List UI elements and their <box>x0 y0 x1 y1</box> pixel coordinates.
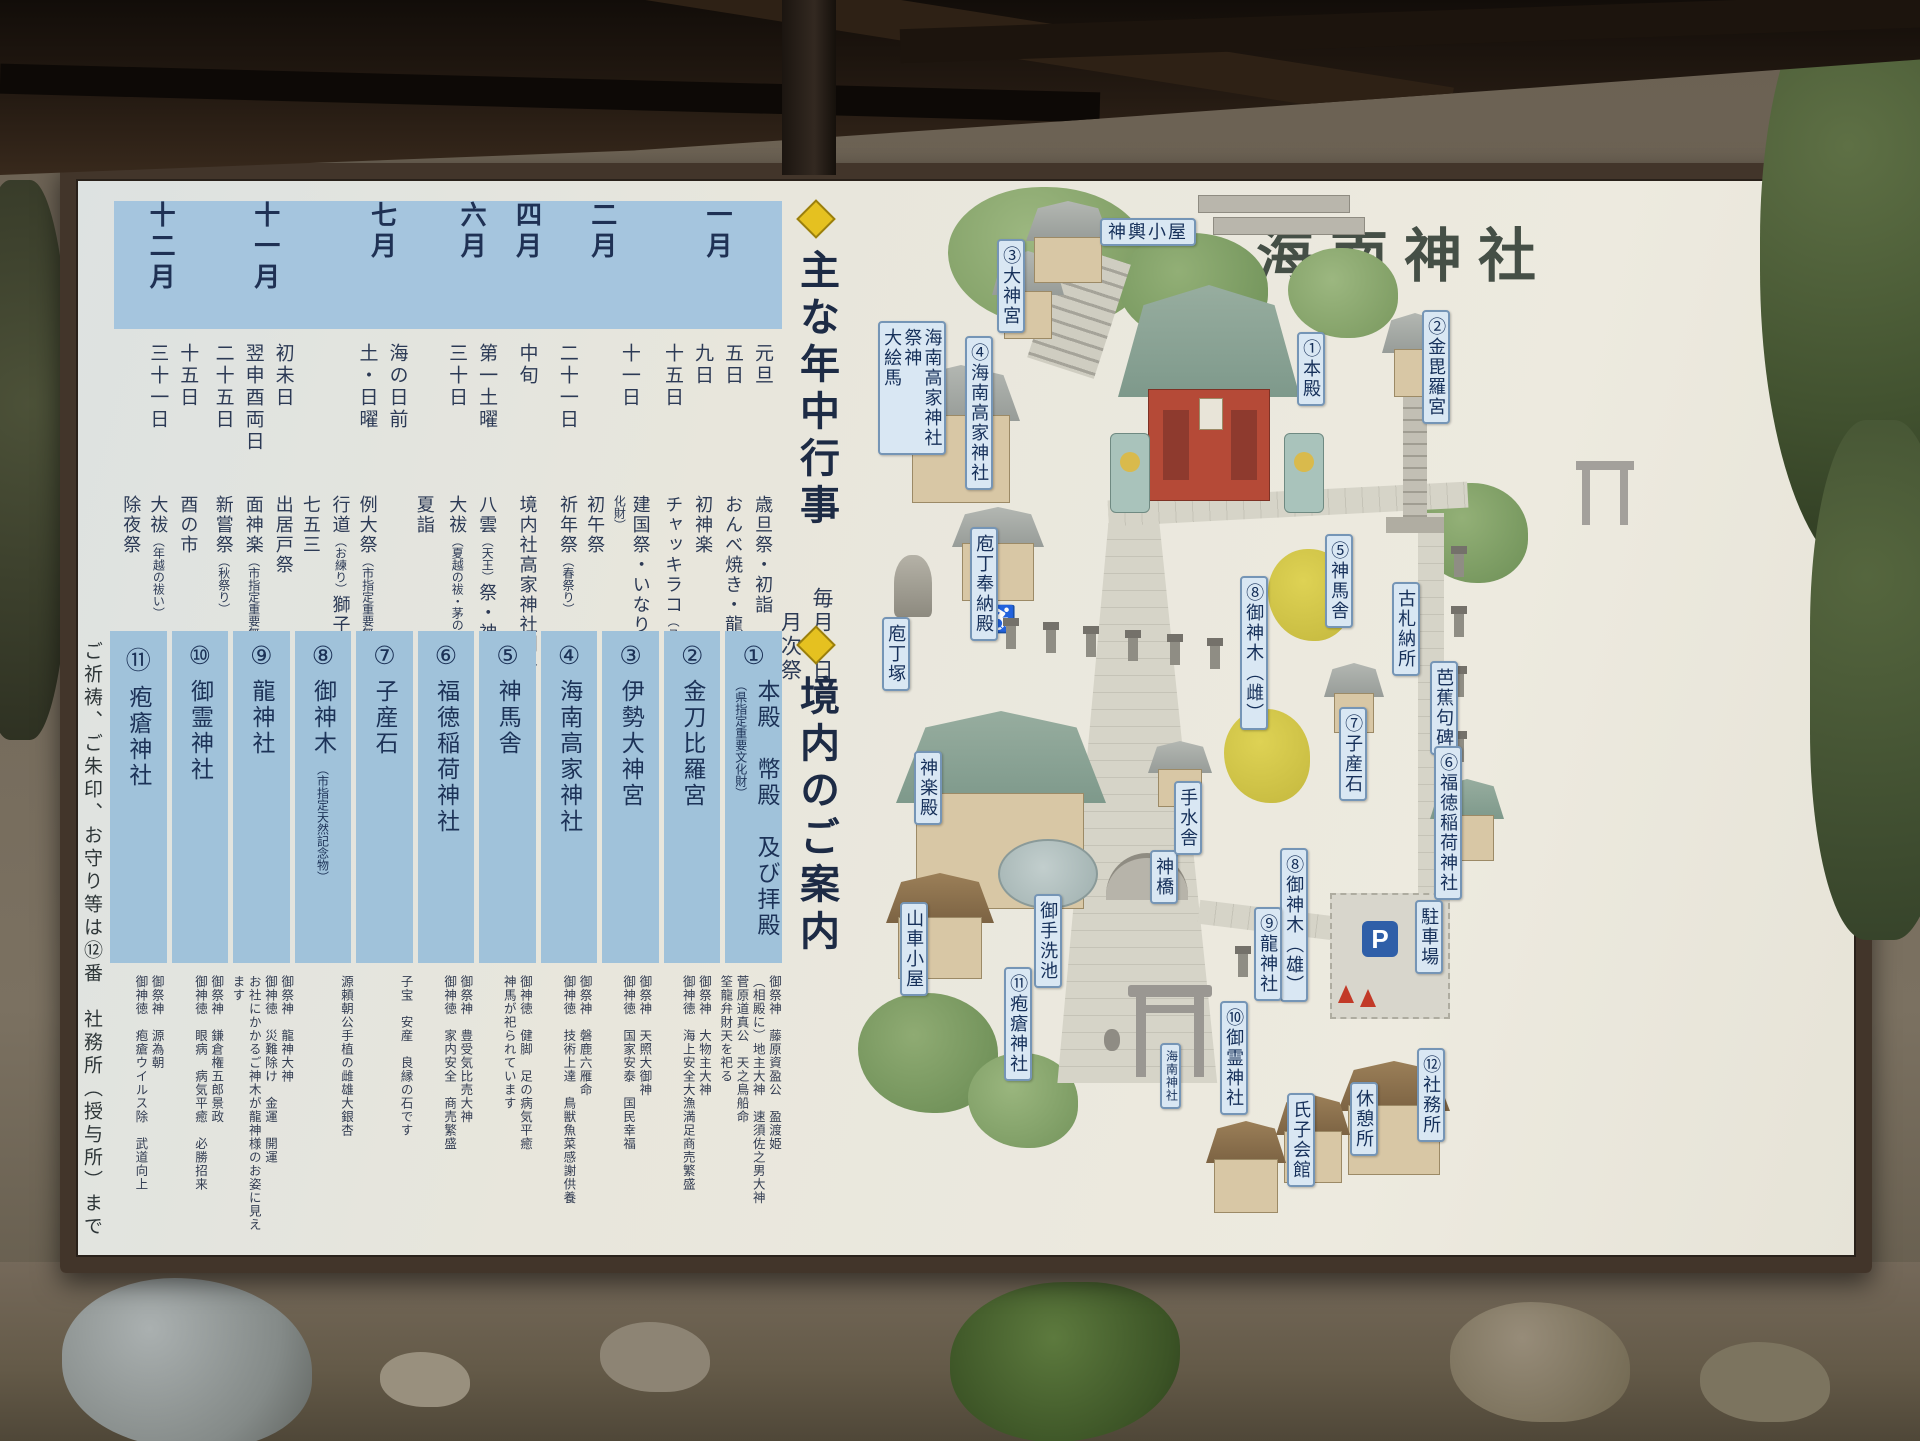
map-label: 駐車場 <box>1415 900 1443 974</box>
konpira-base <box>1386 517 1444 533</box>
stone-lantern-icon <box>1006 625 1016 649</box>
month-label: 十二月 <box>142 201 179 329</box>
gold-crest <box>1120 452 1140 472</box>
map-label: ⑨龍神社 <box>1254 907 1282 1001</box>
map-label: ⑧御神木（雌） <box>1240 576 1268 730</box>
event-date: 二十一日 <box>554 343 581 495</box>
rock <box>1450 1302 1630 1422</box>
event-date: 海の日前 <box>383 343 410 495</box>
spot-number: ⑦ <box>373 641 395 671</box>
traffic-cone <box>1360 989 1376 1007</box>
spot-header: ⑤神馬舎 <box>479 631 536 963</box>
spot-description: 御祭神 磐鹿六雁命 御神徳 技術上達 鳥獣魚菜感謝供養 <box>538 971 593 1243</box>
grounds-map: 海南神社 <box>818 193 1856 1249</box>
rock <box>600 1322 710 1392</box>
stone-lantern-icon <box>1238 953 1248 977</box>
spot-header: ①本殿 幣殿 及び拝殿 （県指定重要文化財） <box>725 631 782 963</box>
map-label: 手水舎 <box>1174 781 1202 855</box>
torii-post <box>1620 469 1628 525</box>
gravel-ground <box>0 1262 1920 1441</box>
month-label: 十一月 <box>247 201 284 329</box>
torii-lintel <box>1128 985 1212 997</box>
komainu-statue <box>1104 1029 1120 1051</box>
torii-post <box>1194 997 1204 1077</box>
spot-description: 御祭神 源為朝 御神徳 疱瘡ウイルス除 武道向上 <box>110 971 165 1243</box>
spot-description: 源頼朝公手植の雌雄大銀杏 <box>299 971 354 1243</box>
upper-torii <box>1574 461 1636 525</box>
torii-post <box>1136 997 1146 1077</box>
month-label: 七月 <box>363 201 400 329</box>
spot-description: 御祭神 鎌倉権五郎景政 御神徳 眼病 病気平癒 必勝招来 <box>170 971 225 1243</box>
spot-number: ③ <box>619 641 641 671</box>
photo-scene: 一月元旦歳旦祭・初詣五日おんべ焼き・龍宮祭九日初神楽十五日チャッキラコ（ユネスコ… <box>0 0 1920 1441</box>
map-label: 庖丁塚 <box>882 617 910 691</box>
event-date: 第一土曜 <box>473 343 500 495</box>
spot-number: ⑨ <box>250 641 272 671</box>
event-date: 五日 <box>719 343 746 495</box>
map-label: ⑩御霊神社 <box>1220 1001 1248 1115</box>
foliage-right-lower <box>1810 420 1920 940</box>
map-label: 庖丁奉納殿 <box>970 527 998 641</box>
map-label: 神橋 <box>1150 850 1178 904</box>
hocho-mound-stone <box>894 555 932 617</box>
spot-description: 子宝 安産 良縁の石です <box>359 971 414 1243</box>
map-label: 海南神社 <box>1160 1043 1181 1109</box>
spot-header: ⑥福徳稲荷神社 <box>418 631 475 963</box>
month-label: 六月 <box>453 201 490 329</box>
spot-name: 金刀比羅宮 <box>680 679 705 949</box>
spot-header: ②金刀比羅宮 <box>664 631 721 963</box>
votive-urn <box>1110 433 1150 513</box>
spot-header: ⑪疱瘡神社 <box>110 631 167 963</box>
roof-post <box>782 0 836 175</box>
event-date: 三十日 <box>443 343 470 495</box>
stone-lantern-icon <box>1454 613 1464 637</box>
event-date: 十一日 <box>616 343 643 495</box>
spot-name: 龍神社 <box>249 679 274 949</box>
spot-header: ⑧御神木 （市指定天然記念物） <box>295 631 352 963</box>
plant <box>950 1282 1180 1441</box>
event-date: 十五日 <box>659 343 686 495</box>
spot-note: （市指定天然記念物） <box>316 757 330 883</box>
gold-crest <box>1294 452 1314 472</box>
spot-name: 福徳稲荷神社 <box>433 679 458 949</box>
rock <box>1700 1342 1830 1422</box>
map-label: ①本殿 <box>1297 332 1325 406</box>
month-label: 一月 <box>699 201 736 329</box>
spot-name: 御霊神社 <box>187 679 212 949</box>
spot-number: ① <box>743 641 765 671</box>
rock <box>380 1352 470 1407</box>
spot-number: ⑪ <box>126 641 151 677</box>
stone-lantern-icon <box>1454 553 1464 577</box>
map-label: 氏子会館 <box>1287 1093 1315 1187</box>
shrine-plaque <box>1199 398 1223 430</box>
map-label: ⑪疱瘡神社 <box>1004 967 1032 1081</box>
votive-urn <box>1284 433 1324 513</box>
spot-header: ⑩御霊神社 <box>172 631 229 963</box>
map-label: 山車小屋 <box>900 902 928 996</box>
spot-note: （県指定重要文化財） <box>734 679 773 951</box>
stone-lantern-icon <box>1210 645 1220 669</box>
map-label: 神輿小屋 <box>1100 218 1196 246</box>
map-label: ⑧御神木（雄） <box>1280 848 1308 1002</box>
shrine-door <box>1231 410 1257 480</box>
spot-header: ④海南高家神社 <box>541 631 598 963</box>
spot-description: 御祭神 天照大御神 御神徳 国家安泰 国民幸福 <box>598 971 653 1243</box>
event-date: 翌申酉両日 <box>240 343 267 495</box>
map-label: 古札納所 <box>1392 582 1420 676</box>
map-label: 神楽殿 <box>914 751 942 825</box>
amulet-office-note: ご祈祷、ご朱印、お守り等は⑫番 社務所（授与所）まで <box>78 641 105 1241</box>
wooden-roof <box>0 0 1920 175</box>
koumiishi-shrine-roof <box>1324 663 1384 697</box>
month-label: 四月 <box>509 201 546 329</box>
spot-name: 疱瘡神社 <box>126 685 151 955</box>
map-label: ③大神宮 <box>997 239 1025 333</box>
event-date: 元旦 <box>749 343 776 495</box>
mikoshi-shed-body <box>1034 237 1102 283</box>
shrine-information-board: 一月元旦歳旦祭・初詣五日おんべ焼き・龍宮祭九日初神楽十五日チャッキラコ（ユネスコ… <box>60 163 1872 1273</box>
spot-name: 本殿 幣殿 及び拝殿 （県指定重要文化財） <box>728 679 779 949</box>
map-label: ⑥福徳稲荷神社 <box>1434 746 1462 900</box>
spot-description: 御祭神 大物主大神 御神徳 海上安全大漁満足商売繁盛 <box>657 971 712 1243</box>
stone-fence <box>1198 195 1350 213</box>
spot-description: 御祭神 藤原資盈公 盈渡姫 （相殿に）地主大神 速須佐之男大神 菅原道真公 天之… <box>717 971 782 1243</box>
spot-number: ② <box>681 641 703 671</box>
map-label: 芭蕉句碑 <box>1430 661 1458 755</box>
event-date: 二十五日 <box>210 343 237 495</box>
map-label: ⑫社務所 <box>1417 1048 1445 1142</box>
torii-post <box>1582 469 1590 525</box>
month-label: 二月 <box>584 201 621 329</box>
map-label: ⑤神馬舎 <box>1325 534 1353 628</box>
map-label: ②金毘羅宮 <box>1422 310 1450 424</box>
event-date: 十五日 <box>174 343 201 495</box>
traffic-cone <box>1338 985 1354 1003</box>
map-label: ④海南高家神社 <box>965 336 993 490</box>
stone-lantern-icon <box>1086 633 1096 657</box>
spot-name: 海南高家神社 <box>556 679 581 949</box>
spot-name-table: ①本殿 幣殿 及び拝殿 （県指定重要文化財）②金刀比羅宮③伊勢大神宮④海南高家神… <box>110 631 782 963</box>
spot-number: ⑥ <box>435 641 457 671</box>
spot-description: 御祭神 龍神大神 御神徳 災難除け 金運 開運 お社にかかるご神木が龍神様のお姿… <box>229 971 294 1243</box>
roof-beam <box>900 0 1920 63</box>
spot-header: ③伊勢大神宮 <box>602 631 659 963</box>
rock <box>62 1278 312 1441</box>
parking-sign: P <box>1362 921 1398 957</box>
shrine-door <box>1163 410 1189 480</box>
map-label: 海南高家神社 祭神 大絵馬 <box>878 321 946 455</box>
parking-label: P <box>1371 924 1388 955</box>
stone-lantern-icon <box>1128 637 1138 661</box>
spot-description: 御祭神 豊受気比売大神 御神徳 家内安全 商売繁盛 <box>419 971 474 1243</box>
parishioner-hall-body <box>1214 1159 1278 1213</box>
spot-description: 御神徳 健脚 足の病気平癒 神馬が祀られています <box>478 971 533 1243</box>
event-date: 九日 <box>689 343 716 495</box>
event-date: 中旬 <box>514 343 541 495</box>
spot-name: 神馬舎 <box>495 679 520 949</box>
main-shrine-body <box>1148 389 1270 501</box>
event-date: 初未日 <box>270 343 297 495</box>
spot-name: 子産石 <box>372 679 397 949</box>
spot-number: ⑤ <box>496 641 518 671</box>
stone-lantern-icon <box>1170 641 1180 665</box>
spot-header: ⑦子産石 <box>356 631 413 963</box>
map-label: 御手洗池 <box>1034 894 1062 988</box>
stone-fence <box>1213 217 1365 235</box>
spot-name: 伊勢大神宮 <box>618 679 643 949</box>
spot-header: ⑨龍神社 <box>233 631 290 963</box>
roof-beam <box>0 64 1100 123</box>
stone-lantern-icon <box>1046 629 1056 653</box>
spot-number: ④ <box>558 641 580 671</box>
spot-number: ⑧ <box>312 641 334 671</box>
tree <box>1288 248 1398 338</box>
spot-name: 御神木 （市指定天然記念物） <box>310 679 335 949</box>
spot-number: ⑩ <box>189 641 211 671</box>
map-label: 休憩所 <box>1350 1082 1378 1156</box>
parishioner-hall-roof <box>1206 1121 1286 1163</box>
map-label: ⑦子産石 <box>1339 707 1367 801</box>
spot-description-table: 御祭神 藤原資盈公 盈渡姫 （相殿に）地主大神 速須佐之男大神 菅原道真公 天之… <box>110 971 782 1243</box>
event-date: 三十一日 <box>144 343 171 495</box>
event-date: 土・日曜 <box>353 343 380 495</box>
